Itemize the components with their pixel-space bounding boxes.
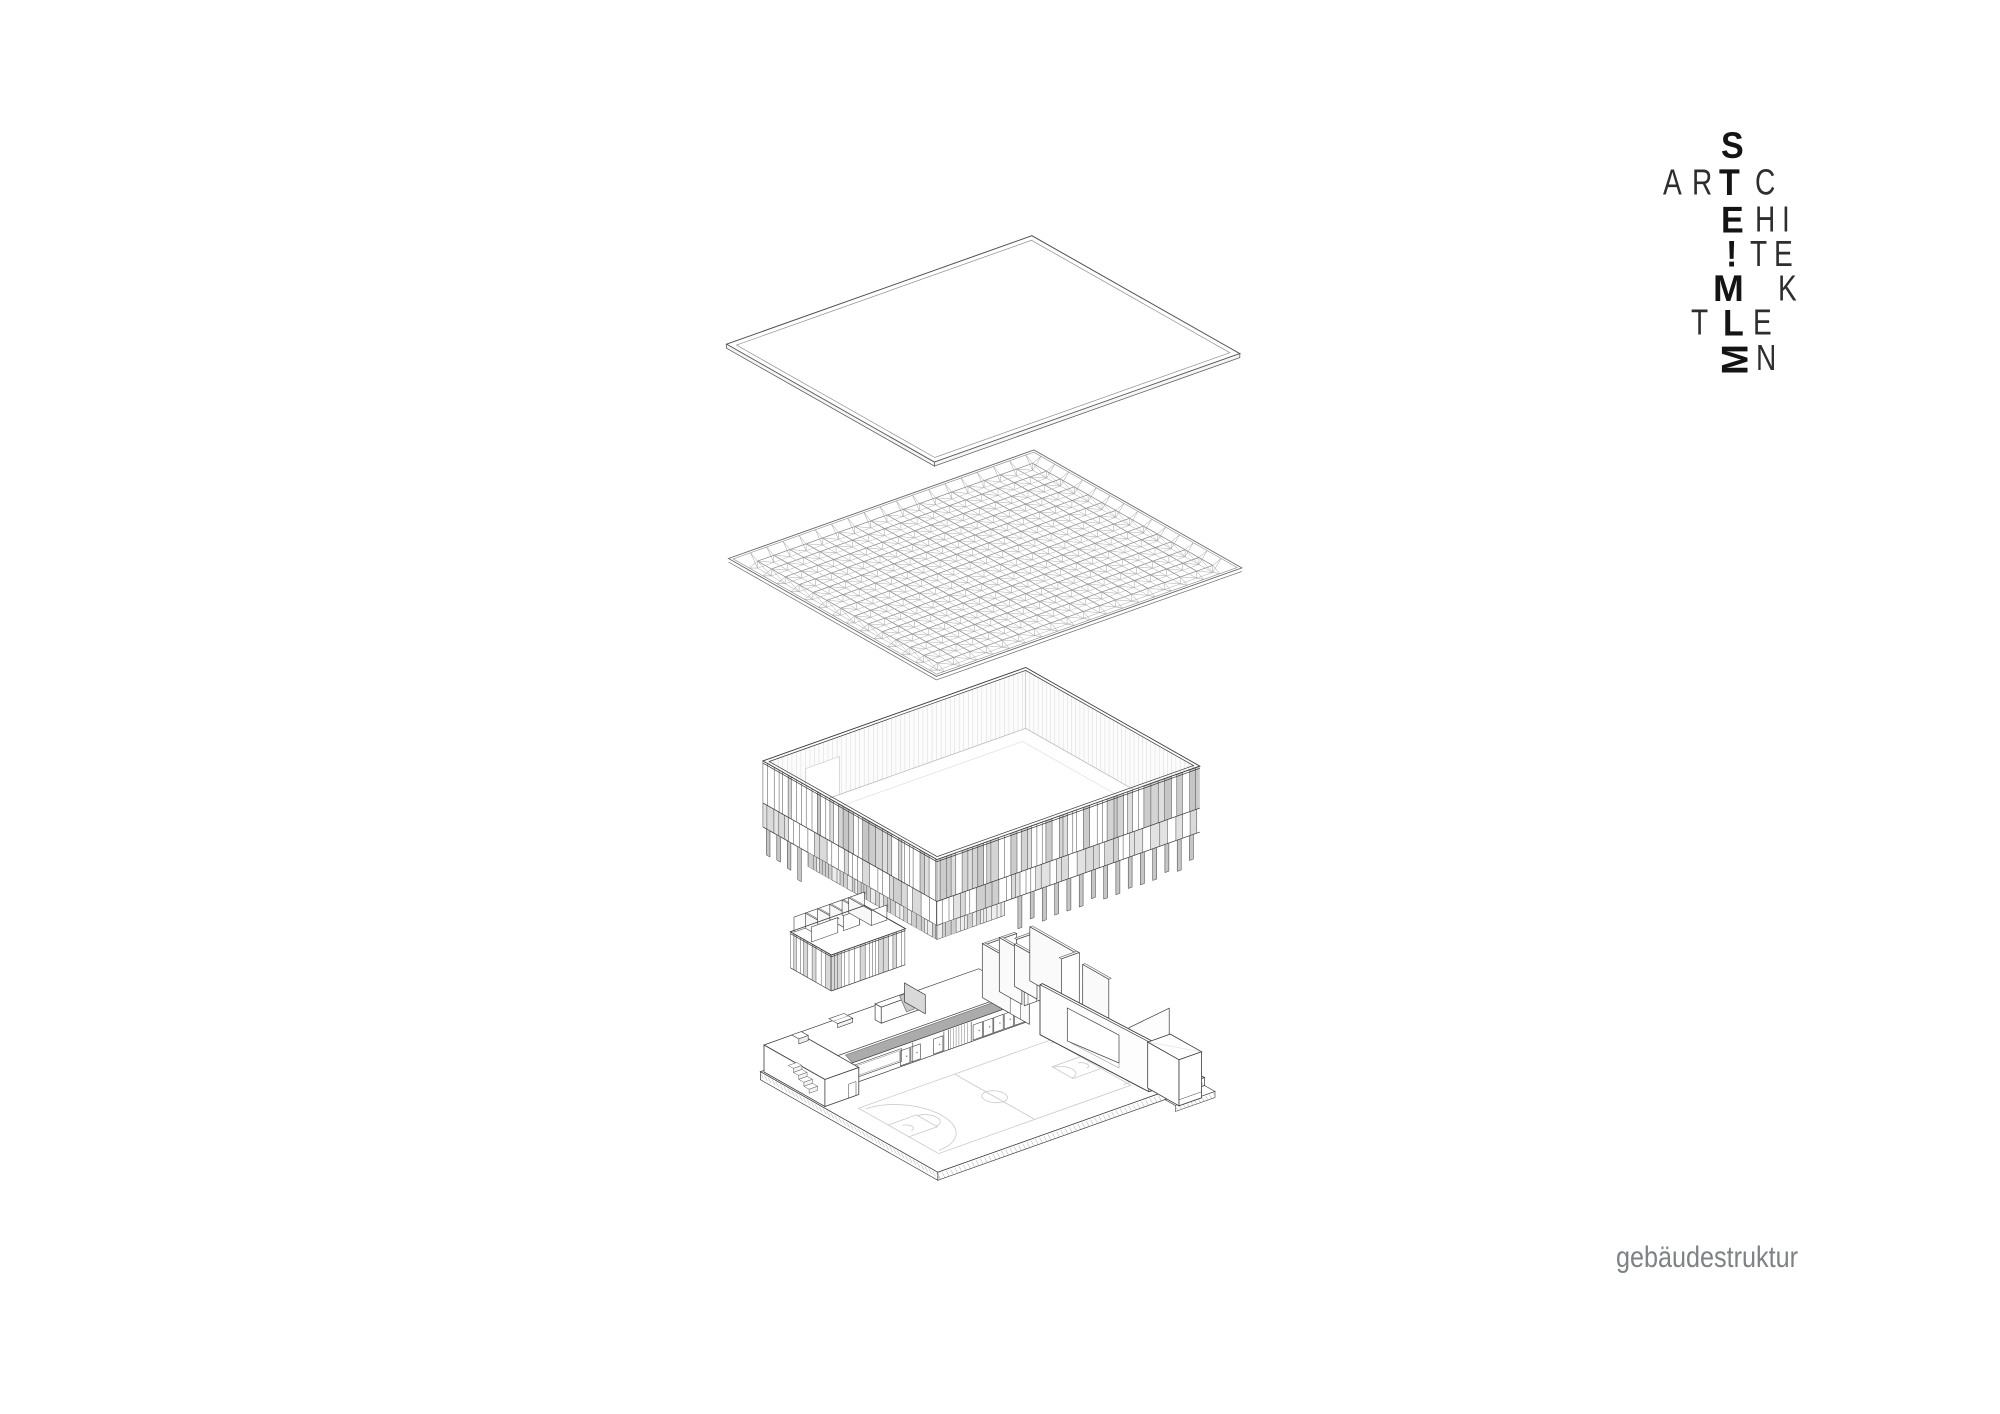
- svg-text:M: M: [1715, 344, 1756, 375]
- svg-text:C: C: [1755, 162, 1775, 202]
- svg-text:A: A: [1663, 162, 1682, 202]
- svg-text:S: S: [1721, 125, 1744, 167]
- svg-text:gebäudestruktur: gebäudestruktur: [1616, 1241, 1798, 1274]
- svg-text:T: T: [1691, 302, 1708, 342]
- svg-text:E: E: [1753, 302, 1772, 342]
- svg-text:T: T: [1719, 162, 1740, 204]
- svg-text:N: N: [1756, 338, 1776, 378]
- svg-text:K: K: [1778, 268, 1797, 308]
- svg-text:L: L: [1723, 302, 1744, 344]
- svg-text:R: R: [1692, 162, 1712, 202]
- svg-text:T: T: [1750, 234, 1767, 274]
